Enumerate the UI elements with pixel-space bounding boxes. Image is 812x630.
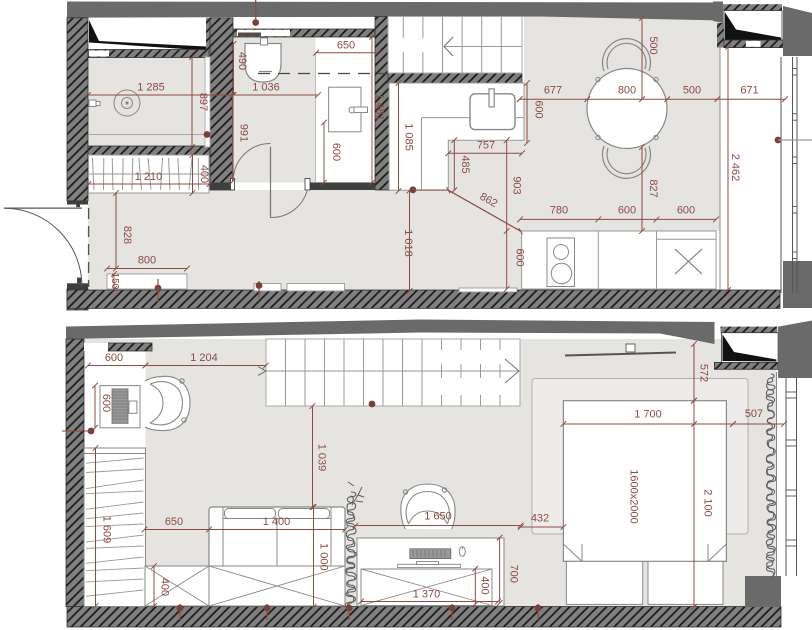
svg-text:600: 600 bbox=[105, 352, 123, 364]
svg-text:1 085: 1 085 bbox=[403, 123, 415, 151]
svg-text:485: 485 bbox=[459, 155, 471, 173]
svg-text:700: 700 bbox=[508, 565, 520, 583]
svg-text:780: 780 bbox=[550, 205, 568, 217]
svg-text:800: 800 bbox=[138, 255, 156, 267]
svg-text:827: 827 bbox=[647, 179, 659, 197]
svg-text:600: 600 bbox=[100, 394, 112, 412]
svg-text:507: 507 bbox=[745, 408, 763, 420]
svg-text:400: 400 bbox=[159, 578, 171, 596]
svg-text:991: 991 bbox=[238, 124, 250, 142]
svg-text:2 100: 2 100 bbox=[702, 489, 714, 517]
svg-text:1 481: 1 481 bbox=[374, 93, 386, 121]
svg-text:490: 490 bbox=[236, 52, 248, 70]
svg-text:903: 903 bbox=[511, 176, 523, 194]
svg-text:432: 432 bbox=[531, 513, 549, 525]
svg-text:650: 650 bbox=[165, 516, 183, 528]
svg-text:1 204: 1 204 bbox=[190, 352, 218, 364]
svg-text:1 609: 1 609 bbox=[101, 516, 113, 544]
svg-text:677: 677 bbox=[544, 85, 562, 97]
svg-text:1 400: 1 400 bbox=[263, 516, 291, 528]
svg-text:500: 500 bbox=[683, 85, 701, 97]
svg-text:1 700: 1 700 bbox=[634, 409, 662, 421]
svg-text:600: 600 bbox=[330, 143, 342, 161]
svg-text:400: 400 bbox=[479, 576, 491, 594]
svg-text:1 000: 1 000 bbox=[318, 543, 330, 571]
svg-text:757: 757 bbox=[477, 140, 495, 152]
svg-text:1 650: 1 650 bbox=[424, 511, 452, 523]
svg-text:1600x2000: 1600x2000 bbox=[628, 469, 640, 523]
svg-text:600: 600 bbox=[533, 100, 545, 118]
svg-text:671: 671 bbox=[740, 85, 758, 97]
svg-text:828: 828 bbox=[121, 226, 133, 244]
svg-text:897: 897 bbox=[197, 93, 209, 111]
svg-text:1 285: 1 285 bbox=[137, 82, 165, 94]
svg-text:600: 600 bbox=[677, 205, 695, 217]
svg-text:1 039: 1 039 bbox=[316, 444, 328, 472]
svg-text:800: 800 bbox=[618, 85, 636, 97]
svg-text:650: 650 bbox=[337, 40, 355, 52]
svg-text:1 210: 1 210 bbox=[135, 171, 163, 183]
svg-text:150: 150 bbox=[109, 273, 120, 290]
svg-text:2 462: 2 462 bbox=[729, 154, 741, 182]
svg-text:600: 600 bbox=[514, 248, 526, 266]
svg-text:1 370: 1 370 bbox=[413, 589, 441, 601]
svg-text:400: 400 bbox=[198, 165, 210, 183]
svg-text:572: 572 bbox=[698, 364, 710, 382]
svg-text:600: 600 bbox=[618, 205, 636, 217]
svg-text:1 036: 1 036 bbox=[252, 82, 280, 94]
svg-text:1 018: 1 018 bbox=[402, 229, 414, 257]
svg-text:500: 500 bbox=[647, 36, 659, 54]
